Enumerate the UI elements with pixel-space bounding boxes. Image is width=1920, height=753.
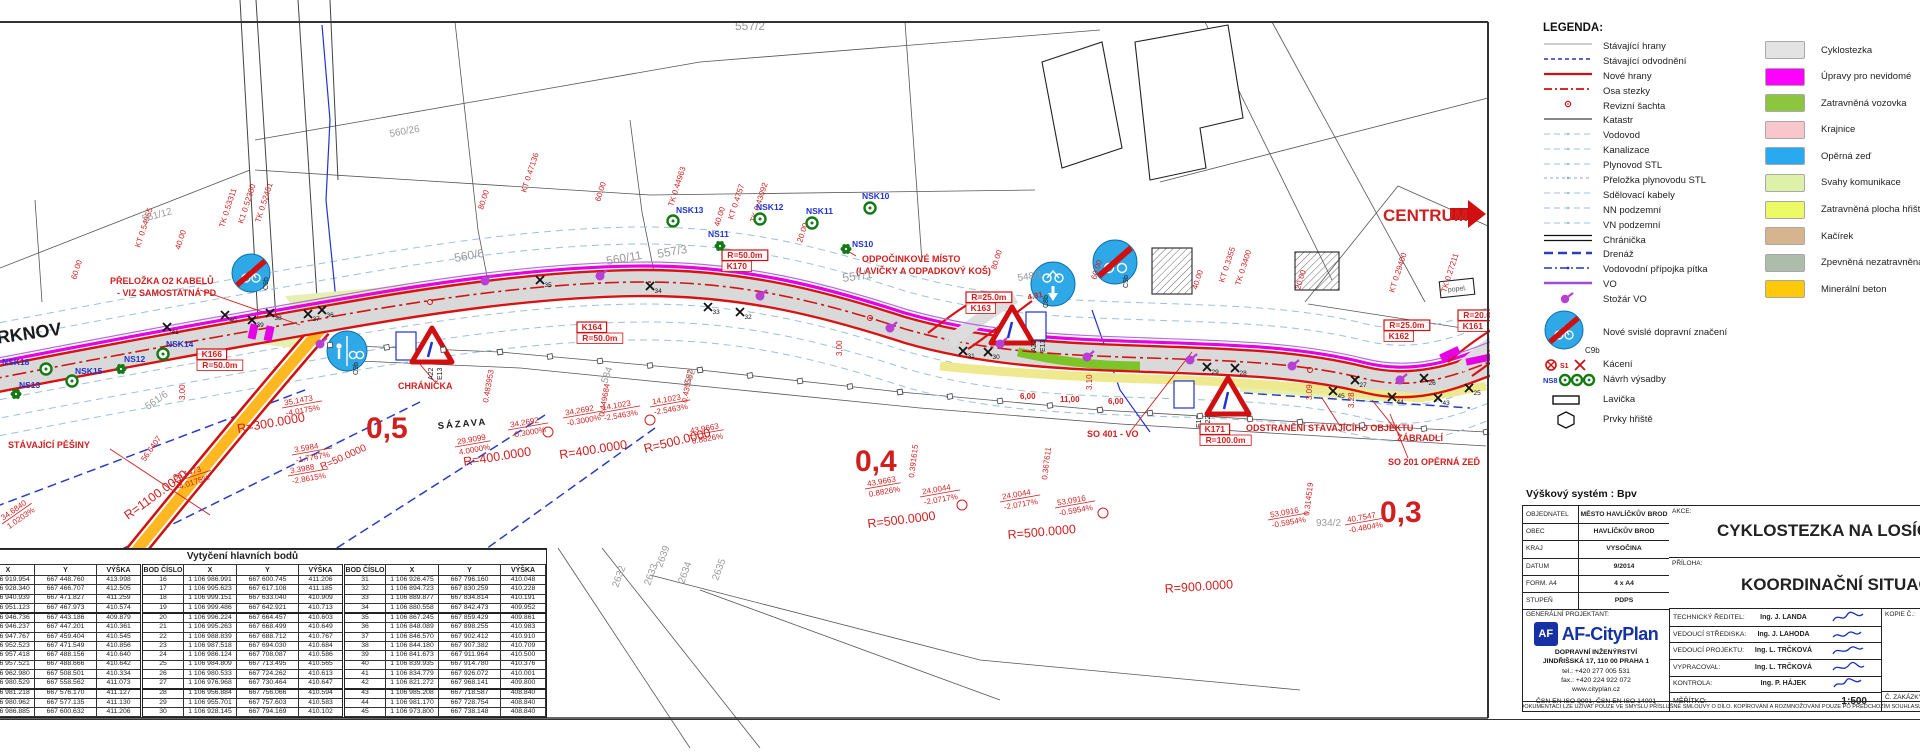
legend-color-swatch bbox=[1765, 41, 1805, 59]
table-cell: 410.048 bbox=[501, 576, 546, 585]
map-annotation: ODSTRANĚNÍ STÁVAJÍCÍHO OBJEKTU bbox=[1246, 422, 1413, 433]
legend-area-item: Cyklostezka bbox=[1765, 41, 1920, 59]
svg-text:27: 27 bbox=[1360, 382, 1368, 389]
legend-color-swatch bbox=[1765, 121, 1805, 139]
station-label: 3.09 bbox=[1305, 384, 1314, 400]
staff-row: VEDOUCÍ STŘEDISKA:Ing. J. LAHODA bbox=[1669, 626, 1881, 644]
gradient-fraction-label: 34.68401.0203% bbox=[0, 496, 38, 533]
sign-code-label: C8b bbox=[1043, 295, 1050, 308]
svg-text:NSK18: NSK18 bbox=[2, 357, 30, 367]
table-cell: 1 106 894.723 bbox=[386, 585, 439, 594]
legend-item-label: Revizní šachta bbox=[1603, 101, 1665, 112]
svg-text:39: 39 bbox=[257, 322, 265, 329]
table-cell: 39 bbox=[344, 651, 386, 660]
svg-text:41: 41 bbox=[172, 329, 180, 336]
table-cell: 667 467.973 bbox=[35, 603, 97, 613]
table-cell: 667 796.160 bbox=[439, 576, 501, 585]
table-cell: 1 106 957.418 bbox=[0, 651, 35, 660]
legend-title: LEGENDA: bbox=[1543, 22, 1920, 34]
hriste-icon bbox=[1543, 411, 1603, 429]
table-cell: 1 106 955.701 bbox=[184, 698, 237, 707]
table-cell: 410.586 bbox=[299, 651, 344, 660]
table-cell: 410.334 bbox=[97, 669, 142, 678]
table-cell: 26 bbox=[142, 669, 184, 678]
table-cell: 667 617.108 bbox=[237, 585, 299, 594]
table-cell: 411.130 bbox=[97, 698, 142, 707]
table-cell: 667 600.632 bbox=[35, 708, 97, 717]
red-dashdot-line-icon bbox=[1543, 82, 1593, 95]
svg-text:NSK10: NSK10 bbox=[862, 191, 890, 201]
field-label: FORM. A4 bbox=[1523, 575, 1579, 592]
util2-line-icon bbox=[1543, 171, 1593, 184]
parcel-number: 561/6 bbox=[143, 389, 170, 413]
map-annotation: PERKNOV bbox=[0, 319, 63, 351]
blue-dash-line-icon bbox=[1543, 52, 1593, 65]
svg-text:36: 36 bbox=[327, 312, 335, 319]
svg-text:NS10: NS10 bbox=[852, 239, 874, 249]
util-line-icon bbox=[1543, 157, 1593, 170]
signature-icon bbox=[1831, 661, 1867, 674]
legend-item-label: NN podzemní bbox=[1603, 205, 1661, 216]
sign-code-label: C9b bbox=[263, 277, 270, 290]
sheet-bottom-edge bbox=[0, 719, 1920, 720]
table-cell: 410.983 bbox=[501, 623, 546, 632]
table-cell: 43 bbox=[344, 689, 386, 699]
legend-item-label: Chránička bbox=[1603, 235, 1646, 246]
table-cell: 1 106 999.151 bbox=[184, 594, 237, 603]
svg-text:K163: K163 bbox=[971, 303, 992, 313]
table-cell: 667 600.745 bbox=[237, 576, 299, 585]
company-address-line: JINDŘIŠSKÁ 17, 110 00 PRAHA 1 bbox=[1523, 657, 1669, 666]
svg-text:30: 30 bbox=[993, 354, 1001, 361]
table-cell: 1 106 947.767 bbox=[0, 632, 35, 641]
svg-text:R=100.0m: R=100.0m bbox=[1206, 435, 1246, 445]
svg-text:C9b: C9b bbox=[1585, 346, 1600, 355]
map-labels: PŘELOŽKA O2 KABELŮ- VIZ SAMOSTATNÁ PDCHR… bbox=[0, 19, 1490, 596]
kopie-label: KOPIE Č.: bbox=[1882, 609, 1920, 618]
table-cell: 411.259 bbox=[97, 594, 142, 603]
table-cell: 410.767 bbox=[299, 632, 344, 641]
table-cell: 411.206 bbox=[299, 576, 344, 585]
column-header: X bbox=[386, 565, 439, 576]
legend-area-items: CyklostezkaÚpravy pro nevidoméZatravněná… bbox=[1765, 41, 1920, 307]
table-cell: 667 898.255 bbox=[439, 623, 501, 632]
table-cell: 1 106 999.486 bbox=[184, 603, 237, 613]
table-cell: 667 664.457 bbox=[237, 613, 299, 623]
legend-color-swatch bbox=[1765, 94, 1805, 112]
legend-item-label: VN podzemní bbox=[1603, 220, 1661, 231]
station-label: 0.367611 bbox=[1040, 446, 1053, 480]
curve-label-box: K164R=50.0m bbox=[577, 322, 623, 344]
table-cell: 410.500 bbox=[501, 651, 546, 660]
legend-area-item: Zpevněná nezatravněná plocha bbox=[1765, 254, 1920, 272]
legend-item-label: Vodovodní přípojka pítka bbox=[1603, 264, 1708, 275]
legend-item-label: Stožár VO bbox=[1603, 294, 1647, 305]
red-line-icon bbox=[1543, 67, 1593, 80]
table-cell: 1 106 946.736 bbox=[0, 613, 35, 623]
map-annotation: ODPOČINKOVÉ MÍSTO bbox=[862, 253, 960, 264]
map-annotation: SÁZAVA bbox=[437, 417, 487, 432]
signature bbox=[1817, 609, 1881, 626]
gradient-fraction-label: 24.0044-2.0717% bbox=[918, 481, 962, 507]
svg-text:K166: K166 bbox=[202, 349, 223, 359]
table-cell: 410.228 bbox=[501, 585, 546, 594]
table-cell: 667 859.429 bbox=[439, 613, 501, 623]
company-address: DOPRAVNÍ INŽENÝRSTVÍJINDŘIŠSKÁ 17, 110 0… bbox=[1523, 648, 1669, 694]
table-cell: 667 713.495 bbox=[237, 660, 299, 669]
felling-mark: 33 bbox=[704, 303, 720, 316]
svg-text:44: 44 bbox=[1397, 399, 1405, 406]
table-cell: 667 907.382 bbox=[439, 642, 501, 651]
table-cell: 409.879 bbox=[97, 613, 142, 623]
legend-area-item: Svahy komunikace bbox=[1765, 174, 1920, 192]
legend-item-label: Zatravněná plocha hřiště bbox=[1821, 204, 1920, 215]
svg-text:R=50.0m: R=50.0m bbox=[582, 333, 618, 343]
table-cell: 410.583 bbox=[299, 698, 344, 707]
table-cell: 667 830.259 bbox=[439, 585, 501, 594]
table-cell: 667 911.964 bbox=[439, 651, 501, 660]
curve-label-box: K166R=50.0m bbox=[197, 349, 243, 371]
table-cell: 410.909 bbox=[299, 594, 344, 603]
table-cell: 409.861 bbox=[501, 613, 546, 623]
company-name: AF-CityPlan bbox=[1562, 624, 1659, 645]
table-cell: 408.840 bbox=[501, 689, 546, 699]
parcel-number: 2635 bbox=[710, 557, 728, 582]
table-cell: 1 106 988.839 bbox=[184, 632, 237, 641]
table-cell: 667 558.562 bbox=[35, 679, 97, 689]
table-cell: 667 471.549 bbox=[35, 642, 97, 651]
parcel-number: 557/1 bbox=[841, 267, 873, 285]
table-cell: 409.800 bbox=[501, 679, 546, 689]
table-cell: 409.952 bbox=[501, 603, 546, 613]
legend-item-label: Sdělovací kabely bbox=[1603, 190, 1675, 201]
svg-text:NS13: NS13 bbox=[19, 380, 41, 390]
legend-item-label: Katastr bbox=[1603, 115, 1633, 126]
legend-item-label: VO bbox=[1603, 279, 1617, 290]
legend-item-label: Krajnice bbox=[1821, 124, 1855, 135]
sign-code-label: C9b bbox=[353, 362, 360, 375]
map-annotation: - VIZ SAMOSTATNÁ PD bbox=[117, 288, 217, 298]
station-label: TK 0.3400 bbox=[1233, 248, 1253, 286]
table-cell: 410.613 bbox=[299, 669, 344, 678]
svg-text:NS11: NS11 bbox=[708, 229, 729, 239]
signature bbox=[1817, 676, 1881, 693]
legend: LEGENDA: Stávající hranyStávající odvodn… bbox=[1543, 22, 1920, 427]
curve-label-box: K171R=100.0m bbox=[1200, 424, 1251, 446]
staff-label: VEDOUCÍ STŘEDISKA: bbox=[1669, 626, 1750, 643]
legend-area-item: Minerální beton bbox=[1765, 280, 1920, 298]
table-cell: 410.647 bbox=[299, 679, 344, 689]
dimension-label: 11,00 bbox=[1060, 395, 1080, 404]
legend-item-label: Návrh výsadby bbox=[1603, 374, 1666, 385]
purple-line-icon bbox=[1543, 276, 1593, 289]
table-cell: 667 708.087 bbox=[237, 651, 299, 660]
table-cell: 411.127 bbox=[97, 689, 142, 699]
table-cell: 17 bbox=[142, 585, 184, 594]
staff-row: TECHNICKÝ ŘEDITEL:Ing. J. LANDA bbox=[1669, 609, 1881, 627]
staff-name: Ing. J. LAHODA bbox=[1750, 626, 1817, 643]
priloha-label: PŘÍLOHA: bbox=[1669, 558, 1920, 567]
planting-symbol: NS10 bbox=[841, 239, 874, 254]
column-header: BOD ČÍSLO bbox=[142, 565, 184, 576]
legend-area-item: Kačírek bbox=[1765, 227, 1920, 245]
survey-points-grid: Vytyčení hlavních bodůBOD ČÍSLOXYVÝŠKABO… bbox=[0, 549, 546, 717]
table-cell: 412.505 bbox=[97, 585, 142, 594]
gradient-fraction-label: 24.0044-2.0717% bbox=[998, 486, 1042, 512]
parcel-number: 557/3 bbox=[656, 242, 688, 261]
parcel-number: 584 bbox=[599, 365, 615, 385]
table-cell: 28 bbox=[142, 689, 184, 699]
map-annotation: SO 201 OPĚRNÁ ZEĎ bbox=[1388, 456, 1481, 467]
station-label: 40.00 bbox=[1190, 268, 1205, 290]
table-cell: 667 724.262 bbox=[237, 669, 299, 678]
column-header: X bbox=[184, 565, 237, 576]
util-line-icon bbox=[1543, 216, 1593, 229]
radius-label: R=500.0000 bbox=[867, 509, 937, 531]
table-cell: 667 576.170 bbox=[35, 689, 97, 699]
map-annotation: 0,4 bbox=[855, 445, 897, 478]
map-annotation: CHRÁNIČKA bbox=[398, 380, 453, 391]
table-cell: 1 106 976.968 bbox=[184, 679, 237, 689]
column-header: BOD ČÍSLO bbox=[344, 565, 386, 576]
lavicka-icon bbox=[1543, 391, 1603, 409]
station-label: 56.6407 bbox=[139, 434, 163, 463]
svg-text:R=50.0m: R=50.0m bbox=[202, 360, 238, 370]
table-cell: 667 730.464 bbox=[237, 679, 299, 689]
table-cell: 1 106 841.673 bbox=[386, 651, 439, 660]
table-cell: 1 106 995.263 bbox=[184, 623, 237, 632]
table-cell: 667 488.156 bbox=[35, 651, 97, 660]
map-annotation: SO 401 - VO bbox=[1087, 429, 1139, 439]
table-cell: 23 bbox=[142, 642, 184, 651]
radius-label: R=500.0000 bbox=[1007, 522, 1076, 542]
planting-symbol: NSK11 bbox=[806, 206, 833, 229]
gray-line-icon bbox=[1543, 112, 1593, 125]
svg-text:NSK15: NSK15 bbox=[75, 366, 103, 376]
svg-text:K171: K171 bbox=[1205, 424, 1226, 434]
table-cell: 667 794.169 bbox=[237, 708, 299, 717]
legend-item-label: Stávající odvodnění bbox=[1603, 56, 1686, 67]
legend-color-swatch bbox=[1765, 68, 1805, 86]
blue-dashdot-line-icon bbox=[1543, 261, 1593, 274]
table-cell: 20 bbox=[142, 613, 184, 623]
station-label: 80.00 bbox=[476, 188, 491, 210]
field-value: 4 x A4 bbox=[1579, 575, 1669, 592]
table-cell: 40 bbox=[344, 660, 386, 669]
table-cell: 29 bbox=[142, 698, 184, 707]
util-line-icon bbox=[1543, 201, 1593, 214]
table-cell: 1 106 926.475 bbox=[386, 576, 439, 585]
svg-text:31: 31 bbox=[968, 353, 976, 360]
table-cell: 1 106 996.224 bbox=[184, 613, 237, 623]
table-cell: 667 834.814 bbox=[439, 594, 501, 603]
c9b-sign-icon: C9b bbox=[1543, 309, 1603, 355]
station-label: 80.00 bbox=[989, 248, 1004, 270]
svg-text:33: 33 bbox=[713, 309, 721, 316]
staff-row: KONTROLA:Ing. P. HÁJEK bbox=[1669, 676, 1881, 694]
staff-name: Ing. J. LANDA bbox=[1750, 609, 1817, 626]
station-label: TK 0.44963 bbox=[666, 165, 688, 208]
table-cell: 1 106 848.089 bbox=[386, 623, 439, 632]
signature-icon bbox=[1831, 628, 1867, 641]
gp-label: GENERÁLNÍ PROJEKTANT: bbox=[1523, 609, 1669, 618]
table-cell: 667 842.473 bbox=[439, 603, 501, 613]
svg-text:S1: S1 bbox=[1560, 363, 1569, 370]
blue-longdash-line-icon bbox=[1543, 246, 1593, 259]
table-cell: 19 bbox=[142, 603, 184, 613]
legend-item-label: Lavička bbox=[1603, 394, 1635, 405]
table-cell: 410.856 bbox=[97, 642, 142, 651]
table-cell: 408.840 bbox=[501, 708, 546, 717]
table-cell: 667 447.201 bbox=[35, 623, 97, 632]
table-cell: 410.594 bbox=[299, 689, 344, 699]
sign-code-label: C9b bbox=[1123, 275, 1130, 288]
legend-item-label: Stávající hrany bbox=[1603, 41, 1666, 52]
dimension-label: 6,00 bbox=[1020, 392, 1036, 401]
staff-label: VYPRACOVAL: bbox=[1669, 659, 1750, 676]
sign-code-label: E13 bbox=[437, 367, 444, 380]
legend-item: NS8Návrh výsadby bbox=[1543, 372, 1920, 387]
legend-item-label: Drenáž bbox=[1603, 249, 1634, 260]
station-label: 0.391615 bbox=[907, 443, 920, 478]
table-cell: 667 577.135 bbox=[35, 698, 97, 707]
staff-name: Ing. L. TRČKOVÁ bbox=[1750, 659, 1817, 676]
signature-icon bbox=[1831, 644, 1867, 657]
util-line-icon bbox=[1543, 142, 1593, 155]
svg-text:34: 34 bbox=[655, 288, 663, 295]
svg-text:32: 32 bbox=[745, 314, 753, 321]
table-cell: 1 106 986.124 bbox=[184, 651, 237, 660]
table-cell: 667 728.754 bbox=[439, 698, 501, 707]
map-annotation: PŘELOŽKA O2 KABELŮ bbox=[110, 275, 214, 286]
table-cell: 1 106 946.237 bbox=[0, 623, 35, 632]
table-cell: 411.073 bbox=[97, 679, 142, 689]
planting-symbol: NSK12 bbox=[755, 202, 784, 225]
double-line-icon bbox=[1543, 231, 1593, 244]
table-cell: 35 bbox=[344, 613, 386, 623]
station-label: KT 0.29400 bbox=[1387, 251, 1408, 294]
svg-text:40: 40 bbox=[230, 317, 238, 324]
table-cell: 1 106 985.208 bbox=[386, 689, 439, 699]
table-cell: 410.001 bbox=[501, 669, 546, 678]
signature bbox=[1817, 642, 1881, 659]
thin-line-icon bbox=[1543, 37, 1593, 50]
table-cell: 410.709 bbox=[501, 642, 546, 651]
radius-label: R=400.0000 bbox=[558, 437, 628, 462]
svg-text:K170: K170 bbox=[727, 261, 748, 271]
title-block: OBJEDNATELMĚSTO HAVLÍČKŮV BRODOBECHAVLÍČ… bbox=[1522, 505, 1920, 712]
legend-color-swatch bbox=[1765, 174, 1805, 192]
legend-item-label: Svahy komunikace bbox=[1821, 177, 1901, 188]
table-cell: 667 914.780 bbox=[439, 660, 501, 669]
table-cell: 37 bbox=[344, 632, 386, 641]
table-cell: 410.102 bbox=[299, 708, 344, 717]
column-header: VÝŠKA bbox=[299, 565, 344, 576]
svg-text:45: 45 bbox=[1338, 393, 1346, 400]
table-cell: 33 bbox=[344, 594, 386, 603]
map-annotation: (LAVIČKY A ODPADKOVÝ KOŠ) bbox=[856, 265, 991, 276]
svg-text:38: 38 bbox=[275, 315, 283, 322]
table-cell: 667 902.412 bbox=[439, 632, 501, 641]
survey-points-table: Vytyčení hlavních bodůBOD ČÍSLOXYVÝŠKABO… bbox=[0, 548, 547, 718]
svg-text:R=25.0m: R=25.0m bbox=[1389, 320, 1425, 330]
svg-text:NSK11: NSK11 bbox=[806, 206, 833, 216]
svg-text:NS8: NS8 bbox=[1543, 376, 1558, 385]
table-cell: 667 757.603 bbox=[237, 698, 299, 707]
dimension-label: 6,00 bbox=[1108, 397, 1124, 406]
table-cell: 410.545 bbox=[97, 632, 142, 641]
table-cell: 34 bbox=[344, 603, 386, 613]
manhole-line-icon bbox=[1543, 97, 1593, 110]
legend-item-label: Kanalizace bbox=[1603, 145, 1649, 156]
general-designer-cell: GENERÁLNÍ PROJEKTANT: AF AF-CityPlan DOP… bbox=[1523, 609, 1670, 711]
sign-code-label: E13 bbox=[1040, 339, 1047, 352]
sign-code-label: A22 bbox=[1031, 339, 1038, 352]
legend-item-label: Nové svislé dopravní značení bbox=[1603, 327, 1727, 338]
station-label: 3,00 bbox=[835, 340, 844, 356]
table-cell: 410.910 bbox=[501, 632, 546, 641]
curve-label-box: R=20.0mK161 bbox=[1458, 310, 1490, 332]
parcel-number: 2639 bbox=[654, 544, 672, 569]
company-address-line: fax.: +420 224 922 072 bbox=[1523, 676, 1669, 685]
table-cell: 41 bbox=[344, 669, 386, 678]
table-cell: 410.684 bbox=[299, 642, 344, 651]
table-cell: 1 106 846.570 bbox=[386, 632, 439, 641]
legend-area-item: Zatravněná vozovka bbox=[1765, 94, 1920, 112]
table-cell: 410.640 bbox=[97, 651, 142, 660]
svg-text:K161: K161 bbox=[1463, 321, 1484, 331]
table-cell: 667 756.066 bbox=[237, 689, 299, 699]
table-cell: 667 471.827 bbox=[35, 594, 97, 603]
legend-item-label: Zatravněná vozovka bbox=[1821, 98, 1907, 109]
legend-color-swatch bbox=[1765, 201, 1805, 219]
height-system-note: Výškový systém : Bpv bbox=[1526, 488, 1637, 500]
field-label: DATUM bbox=[1523, 558, 1579, 575]
pole-line-icon bbox=[1543, 291, 1593, 304]
table-cell: 1 106 928.145 bbox=[184, 708, 237, 717]
table-cell: 410.361 bbox=[97, 623, 142, 632]
table-cell: 25 bbox=[142, 660, 184, 669]
table-cell: 413.998 bbox=[97, 576, 142, 585]
table-cell: 1 106 995.623 bbox=[184, 585, 237, 594]
table-cell: 411.185 bbox=[299, 585, 344, 594]
legend-item-label: Úpravy pro nevidomé bbox=[1821, 71, 1911, 82]
table-cell: 410.191 bbox=[501, 594, 546, 603]
station-label: 40.00 bbox=[712, 205, 727, 227]
table-cell: 667 688.712 bbox=[237, 632, 299, 641]
svg-text:NS12: NS12 bbox=[124, 354, 146, 364]
legend-item-label: Zpevněná nezatravněná plocha bbox=[1821, 257, 1920, 268]
station-label: 3.28 bbox=[1347, 392, 1356, 408]
company-logo: AF AF-CityPlan bbox=[1523, 622, 1669, 646]
field-value: PDPS bbox=[1579, 592, 1669, 609]
table-cell: 408.840 bbox=[501, 698, 546, 707]
station-label: 40.00 bbox=[173, 228, 188, 250]
title-block-field: FORM. A44 x A4 bbox=[1523, 575, 1669, 593]
table-cell: 38 bbox=[344, 642, 386, 651]
table-cell: 410.642 bbox=[97, 660, 142, 669]
legend-item-label: Vodovod bbox=[1603, 130, 1640, 141]
table-cell: 24 bbox=[142, 651, 184, 660]
station-label: 3.10 bbox=[1085, 374, 1094, 390]
table-cell: 31 bbox=[344, 576, 386, 585]
svg-text:R=50.0m: R=50.0m bbox=[727, 250, 763, 260]
staff-label: TECHNICKÝ ŘEDITEL: bbox=[1669, 609, 1750, 626]
legend-color-swatch bbox=[1765, 147, 1805, 165]
cycle-path-corridor bbox=[0, 262, 1490, 398]
legend-item-label: Opěrná zeď bbox=[1821, 151, 1871, 162]
staff-row: VYPRACOVAL:Ing. L. TRČKOVÁ bbox=[1669, 659, 1881, 677]
